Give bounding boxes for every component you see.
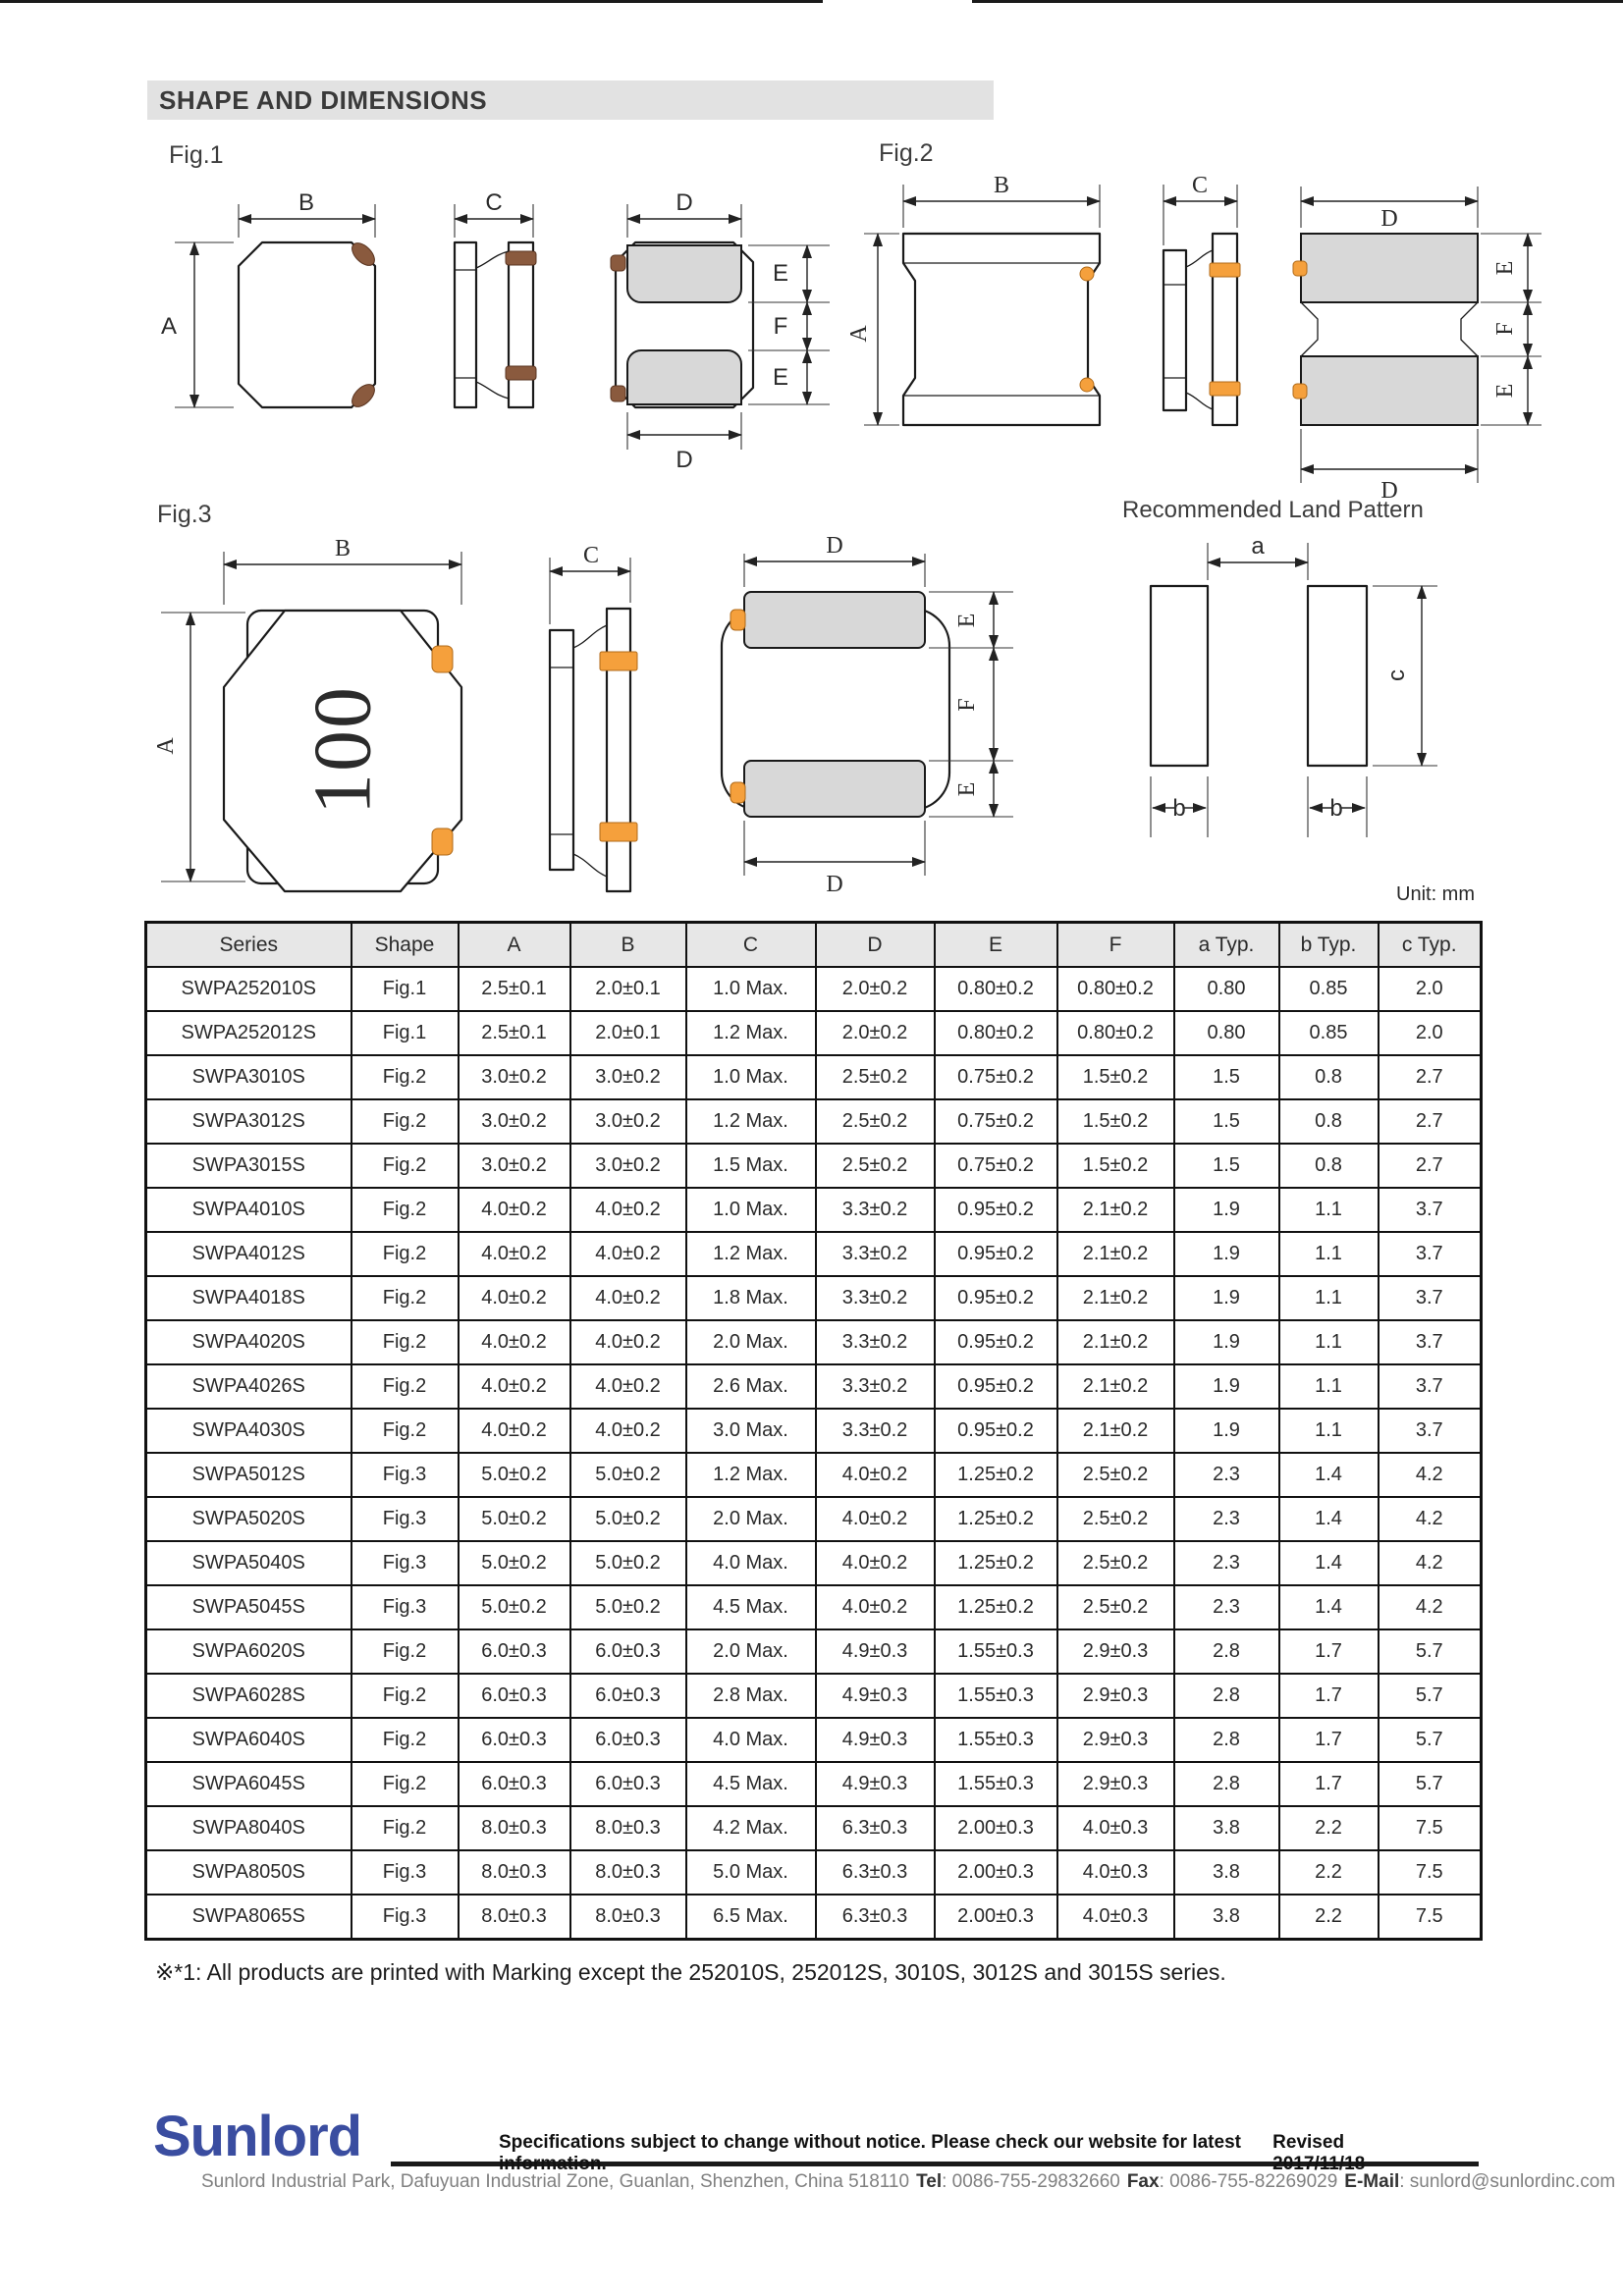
- table-cell: Fig.3: [352, 1453, 459, 1497]
- table-cell: 1.55±0.3: [935, 1674, 1057, 1718]
- table-cell: 1.2 Max.: [686, 1453, 816, 1497]
- table-cell: 7.5: [1379, 1806, 1482, 1850]
- table-row: SWPA8050SFig.38.0±0.38.0±0.35.0 Max.6.3±…: [146, 1850, 1482, 1895]
- dim-label-D: D: [676, 189, 692, 216]
- table-cell: 3.7: [1379, 1276, 1482, 1320]
- table-cell: 6.0±0.3: [570, 1674, 686, 1718]
- inductance-marking: 100: [298, 685, 389, 815]
- table-cell: 3.0±0.2: [570, 1144, 686, 1188]
- table-cell: 1.8 Max.: [686, 1276, 816, 1320]
- table-cell: 3.8: [1174, 1806, 1279, 1850]
- terminal-band: [600, 652, 637, 670]
- table-cell: SWPA5020S: [146, 1497, 352, 1541]
- table-cell: 0.85: [1279, 1011, 1379, 1055]
- table-cell: 4.0±0.2: [459, 1276, 570, 1320]
- table-cell: SWPA5040S: [146, 1541, 352, 1585]
- table-row: SWPA8065SFig.38.0±0.38.0±0.36.5 Max.6.3±…: [146, 1895, 1482, 1940]
- solder-pad: [1301, 356, 1478, 425]
- table-cell: 2.8: [1174, 1674, 1279, 1718]
- table-cell: 2.1±0.2: [1057, 1188, 1174, 1232]
- dim-label-E: E: [773, 260, 788, 287]
- table-cell: Fig.2: [352, 1718, 459, 1762]
- table-cell: 0.80: [1174, 967, 1279, 1011]
- table-cell: 0.8: [1279, 1055, 1379, 1099]
- solder-pad: [1301, 234, 1478, 302]
- table-cell: 0.95±0.2: [935, 1276, 1057, 1320]
- table-cell: 1.9: [1174, 1364, 1279, 1409]
- marking-footnote: ※*1: All products are printed with Marki…: [155, 1959, 1226, 1986]
- table-cell: 4.0±0.2: [816, 1497, 935, 1541]
- table-cell: 2.0±0.1: [570, 1011, 686, 1055]
- table-cell: 5.0±0.2: [570, 1585, 686, 1629]
- table-cell: 1.1: [1279, 1320, 1379, 1364]
- table-cell: 2.00±0.3: [935, 1850, 1057, 1895]
- table-cell: 5.7: [1379, 1674, 1482, 1718]
- fig1-drawing: B A C D D: [147, 177, 844, 481]
- terminal-pad: [432, 646, 453, 672]
- dim-label-A: A: [153, 737, 179, 755]
- table-cell: 2.1±0.2: [1057, 1364, 1174, 1409]
- column-header: B: [570, 923, 686, 968]
- table-row: SWPA5045SFig.35.0±0.25.0±0.24.5 Max.4.0±…: [146, 1585, 1482, 1629]
- fig2-front-view: B A: [846, 173, 1100, 425]
- terminal-band: [1210, 382, 1240, 396]
- terminal-pad: [1080, 378, 1094, 392]
- table-cell: 1.2 Max.: [686, 1232, 816, 1276]
- table-cell: SWPA3010S: [146, 1055, 352, 1099]
- table-cell: 8.0±0.3: [459, 1895, 570, 1940]
- table-cell: 2.1±0.2: [1057, 1232, 1174, 1276]
- table-cell: 4.0±0.2: [570, 1409, 686, 1453]
- table-cell: 0.80±0.2: [1057, 1011, 1174, 1055]
- table-cell: 4.0±0.2: [570, 1320, 686, 1364]
- table-cell: 4.0±0.3: [1057, 1806, 1174, 1850]
- table-cell: SWPA5045S: [146, 1585, 352, 1629]
- fig2-side-view: C: [1163, 173, 1240, 425]
- table-cell: 6.0±0.3: [459, 1762, 570, 1806]
- dim-label-F: F: [774, 313, 788, 340]
- table-cell: 5.0±0.2: [459, 1453, 570, 1497]
- table-cell: 8.0±0.3: [459, 1850, 570, 1895]
- terminal-tab: [1293, 261, 1307, 276]
- table-cell: 2.8 Max.: [686, 1674, 816, 1718]
- table-cell: 4.0±0.2: [459, 1364, 570, 1409]
- table-cell: Fig.2: [352, 1364, 459, 1409]
- table-cell: 1.5±0.2: [1057, 1055, 1174, 1099]
- tel-value: : 0086-755-29832660: [942, 2171, 1120, 2192]
- table-cell: 6.0±0.3: [570, 1762, 686, 1806]
- dim-label-a: a: [1251, 533, 1265, 560]
- solder-pad: [744, 592, 925, 648]
- solder-pad: [744, 761, 925, 817]
- table-cell: 3.3±0.2: [816, 1364, 935, 1409]
- table-cell: 3.7: [1379, 1320, 1482, 1364]
- table-cell: SWPA5012S: [146, 1453, 352, 1497]
- column-header: b Typ.: [1279, 923, 1379, 968]
- table-cell: 2.7: [1379, 1099, 1482, 1144]
- table-cell: 5.0 Max.: [686, 1850, 816, 1895]
- table-row: SWPA252010SFig.12.5±0.12.0±0.11.0 Max.2.…: [146, 967, 1482, 1011]
- table-cell: SWPA8050S: [146, 1850, 352, 1895]
- table-cell: 3.0±0.2: [459, 1055, 570, 1099]
- table-cell: 4.2: [1379, 1585, 1482, 1629]
- table-cell: 2.0±0.2: [816, 967, 935, 1011]
- table-cell: Fig.3: [352, 1895, 459, 1940]
- table-row: SWPA4010SFig.24.0±0.24.0±0.21.0 Max.3.3±…: [146, 1188, 1482, 1232]
- table-cell: SWPA4012S: [146, 1232, 352, 1276]
- dim-label-E: E: [954, 782, 980, 797]
- table-cell: Fig.2: [352, 1320, 459, 1364]
- terminal-tab: [611, 386, 625, 401]
- scan-artifact-line: [972, 0, 1623, 3]
- table-cell: Fig.2: [352, 1188, 459, 1232]
- table-cell: 4.0±0.3: [1057, 1850, 1174, 1895]
- table-cell: 2.7: [1379, 1055, 1482, 1099]
- table-cell: SWPA3015S: [146, 1144, 352, 1188]
- table-cell: 7.5: [1379, 1850, 1482, 1895]
- column-header: D: [816, 923, 935, 968]
- table-cell: 1.5: [1174, 1144, 1279, 1188]
- table-row: SWPA4018SFig.24.0±0.24.0±0.21.8 Max.3.3±…: [146, 1276, 1482, 1320]
- table-cell: 4.0 Max.: [686, 1541, 816, 1585]
- land-pattern-title: Recommended Land Pattern: [1122, 497, 1424, 524]
- table-cell: 7.5: [1379, 1895, 1482, 1940]
- table-cell: 5.7: [1379, 1629, 1482, 1674]
- table-cell: 3.3±0.2: [816, 1409, 935, 1453]
- table-cell: 2.9±0.3: [1057, 1718, 1174, 1762]
- fig2-drawing: B A C D D: [864, 157, 1542, 501]
- table-cell: 1.7: [1279, 1629, 1379, 1674]
- table-cell: 2.5±0.2: [1057, 1541, 1174, 1585]
- dim-label-C: C: [485, 189, 502, 216]
- table-cell: SWPA6028S: [146, 1674, 352, 1718]
- scan-artifact-line: [0, 0, 823, 3]
- dim-label-D: D: [826, 872, 842, 897]
- table-cell: SWPA4020S: [146, 1320, 352, 1364]
- dim-label-E: E: [1492, 261, 1518, 276]
- table-cell: 0.80±0.2: [1057, 967, 1174, 1011]
- dim-label-D: D: [1380, 206, 1397, 232]
- table-cell: 2.1±0.2: [1057, 1276, 1174, 1320]
- terminal-tab: [730, 610, 745, 630]
- table-cell: 2.5±0.1: [459, 967, 570, 1011]
- table-cell: 1.25±0.2: [935, 1453, 1057, 1497]
- table-cell: 4.0±0.3: [1057, 1895, 1174, 1940]
- table-cell: 4.2 Max.: [686, 1806, 816, 1850]
- table-cell: 6.0±0.3: [570, 1718, 686, 1762]
- table-cell: 5.0±0.2: [570, 1453, 686, 1497]
- dim-label-B: B: [994, 173, 1009, 198]
- table-cell: Fig.2: [352, 1276, 459, 1320]
- terminal-tab: [730, 782, 745, 803]
- solder-pad: [627, 350, 741, 404]
- table-cell: 2.5±0.2: [816, 1055, 935, 1099]
- table-cell: 0.75±0.2: [935, 1099, 1057, 1144]
- table-cell: 2.5±0.2: [1057, 1497, 1174, 1541]
- column-header: Shape: [352, 923, 459, 968]
- table-cell: SWPA8065S: [146, 1895, 352, 1940]
- spec-notice: Specifications subject to change without…: [499, 2132, 1272, 2175]
- table-cell: 1.5 Max.: [686, 1144, 816, 1188]
- table-cell: Fig.2: [352, 1055, 459, 1099]
- table-cell: 3.0±0.2: [459, 1099, 570, 1144]
- table-cell: 4.2: [1379, 1497, 1482, 1541]
- dim-label-A: A: [846, 325, 872, 343]
- table-row: SWPA3012SFig.23.0±0.23.0±0.21.2 Max.2.5±…: [146, 1099, 1482, 1144]
- table-cell: SWPA252010S: [146, 967, 352, 1011]
- table-cell: 0.8: [1279, 1099, 1379, 1144]
- dim-label-b: b: [1172, 795, 1185, 822]
- table-cell: Fig.1: [352, 967, 459, 1011]
- dimensions-table: SeriesShapeABCDEFa Typ.b Typ.c Typ. SWPA…: [144, 921, 1483, 1941]
- table-cell: 2.2: [1279, 1850, 1379, 1895]
- table-row: SWPA3015SFig.23.0±0.23.0±0.21.5 Max.2.5±…: [146, 1144, 1482, 1188]
- table-cell: 0.75±0.2: [935, 1144, 1057, 1188]
- footer-notice-row: Specifications subject to change without…: [499, 2132, 1426, 2175]
- table-row: SWPA8040SFig.28.0±0.38.0±0.34.2 Max.6.3±…: [146, 1806, 1482, 1850]
- dim-label-A: A: [161, 313, 177, 340]
- email-label: E-Mail: [1344, 2171, 1399, 2192]
- table-row: SWPA6020SFig.26.0±0.36.0±0.32.0 Max.4.9±…: [146, 1629, 1482, 1674]
- table-cell: Fig.2: [352, 1629, 459, 1674]
- email-value: : sunlord@sunlordinc.com: [1399, 2171, 1615, 2192]
- table-cell: 4.0±0.2: [459, 1188, 570, 1232]
- table-cell: Fig.2: [352, 1232, 459, 1276]
- table-cell: 1.7: [1279, 1718, 1379, 1762]
- table-cell: 2.00±0.3: [935, 1806, 1057, 1850]
- dim-label-C: C: [583, 543, 599, 568]
- column-header: a Typ.: [1174, 923, 1279, 968]
- table-cell: 2.6 Max.: [686, 1364, 816, 1409]
- table-cell: Fig.2: [352, 1762, 459, 1806]
- table-header-row: SeriesShapeABCDEFa Typ.b Typ.c Typ.: [146, 923, 1482, 968]
- table-cell: 0.95±0.2: [935, 1409, 1057, 1453]
- table-cell: 2.3: [1174, 1541, 1279, 1585]
- table-cell: Fig.2: [352, 1099, 459, 1144]
- table-cell: 2.5±0.2: [816, 1099, 935, 1144]
- fig3-side-view: C: [550, 543, 637, 891]
- table-cell: 3.8: [1174, 1895, 1279, 1940]
- table-cell: 3.7: [1379, 1364, 1482, 1409]
- dim-label-B: B: [335, 536, 351, 561]
- table-cell: 2.00±0.3: [935, 1895, 1057, 1940]
- dim-label-D: D: [1380, 478, 1397, 504]
- fig2-bottom-view: D D E F E: [1293, 187, 1542, 504]
- table-cell: 1.9: [1174, 1320, 1279, 1364]
- table-cell: 2.9±0.3: [1057, 1674, 1174, 1718]
- table-cell: 1.2 Max.: [686, 1099, 816, 1144]
- table-cell: 8.0±0.3: [570, 1806, 686, 1850]
- table-cell: 1.1: [1279, 1364, 1379, 1409]
- table-cell: 4.9±0.3: [816, 1718, 935, 1762]
- fig3-drawing: 100 B A C: [137, 530, 1041, 903]
- table-cell: 0.95±0.2: [935, 1364, 1057, 1409]
- terminal-band: [506, 251, 536, 265]
- table-cell: 5.0±0.2: [459, 1541, 570, 1585]
- table-cell: 1.55±0.3: [935, 1718, 1057, 1762]
- dim-label-E: E: [773, 364, 788, 391]
- fig1-bottom-view: D D E F E: [611, 189, 830, 473]
- table-cell: 1.1: [1279, 1276, 1379, 1320]
- table-cell: 0.75±0.2: [935, 1055, 1057, 1099]
- table-cell: 5.0±0.2: [570, 1497, 686, 1541]
- fig3-bottom-view: D D E F E: [722, 533, 1013, 897]
- table-cell: 1.9: [1174, 1188, 1279, 1232]
- column-header: Series: [146, 923, 352, 968]
- fax-label: Fax: [1127, 2171, 1160, 2192]
- terminal-pad: [432, 828, 453, 855]
- table-cell: 6.0±0.3: [570, 1629, 686, 1674]
- table-cell: SWPA4030S: [146, 1409, 352, 1453]
- table-cell: 4.0 Max.: [686, 1718, 816, 1762]
- table-cell: 2.3: [1174, 1497, 1279, 1541]
- terminal-band: [1210, 263, 1240, 277]
- fig3-label: Fig.3: [157, 501, 212, 529]
- table-cell: Fig.3: [352, 1497, 459, 1541]
- table-cell: SWPA252012S: [146, 1011, 352, 1055]
- unit-label: Unit: mm: [1306, 883, 1475, 906]
- table-cell: 5.7: [1379, 1718, 1482, 1762]
- table-cell: SWPA4026S: [146, 1364, 352, 1409]
- table-cell: 6.5 Max.: [686, 1895, 816, 1940]
- footer-address: Sunlord Industrial Park, Dafuyuan Indust…: [201, 2171, 1488, 2193]
- table-cell: SWPA3012S: [146, 1099, 352, 1144]
- table-cell: Fig.2: [352, 1409, 459, 1453]
- table-cell: 2.5±0.2: [1057, 1453, 1174, 1497]
- dim-label-D: D: [826, 533, 842, 559]
- dim-label-E: E: [954, 614, 980, 628]
- table-cell: 1.7: [1279, 1674, 1379, 1718]
- table-cell: 6.3±0.3: [816, 1850, 935, 1895]
- fig1-side-view: C: [455, 189, 536, 407]
- table-cell: 4.0±0.2: [816, 1453, 935, 1497]
- table-cell: Fig.2: [352, 1674, 459, 1718]
- terminal-band: [600, 823, 637, 841]
- table-cell: Fig.3: [352, 1850, 459, 1895]
- table-cell: 3.7: [1379, 1188, 1482, 1232]
- solder-pad: [627, 245, 741, 302]
- table-cell: 1.55±0.3: [935, 1629, 1057, 1674]
- table-cell: 2.0 Max.: [686, 1497, 816, 1541]
- table-cell: 0.95±0.2: [935, 1232, 1057, 1276]
- table-cell: SWPA4010S: [146, 1188, 352, 1232]
- table-cell: 3.7: [1379, 1232, 1482, 1276]
- table-cell: 4.0±0.2: [816, 1541, 935, 1585]
- table-cell: 3.3±0.2: [816, 1232, 935, 1276]
- table-cell: 5.7: [1379, 1762, 1482, 1806]
- fig1-label: Fig.1: [169, 141, 224, 170]
- table-cell: 0.80±0.2: [935, 1011, 1057, 1055]
- table-cell: 1.5: [1174, 1055, 1279, 1099]
- table-cell: 3.3±0.2: [816, 1188, 935, 1232]
- table-row: SWPA4026SFig.24.0±0.24.0±0.22.6 Max.3.3±…: [146, 1364, 1482, 1409]
- table-cell: 2.2: [1279, 1895, 1379, 1940]
- table-cell: 2.9±0.3: [1057, 1629, 1174, 1674]
- table-cell: 2.0: [1379, 967, 1482, 1011]
- terminal-band: [506, 366, 536, 380]
- table-cell: 2.8: [1174, 1762, 1279, 1806]
- table-cell: 8.0±0.3: [570, 1850, 686, 1895]
- land-pad: [1308, 586, 1367, 766]
- table-cell: 1.4: [1279, 1541, 1379, 1585]
- table-cell: 6.0±0.3: [459, 1674, 570, 1718]
- sunlord-logo: Sunlord: [153, 2104, 361, 2169]
- table-cell: SWPA8040S: [146, 1806, 352, 1850]
- table-cell: 1.5±0.2: [1057, 1144, 1174, 1188]
- table-cell: 1.25±0.2: [935, 1497, 1057, 1541]
- table-cell: 4.2: [1379, 1453, 1482, 1497]
- table-cell: 1.4: [1279, 1585, 1379, 1629]
- dim-label-C: C: [1192, 173, 1208, 198]
- table-cell: 4.0±0.2: [816, 1585, 935, 1629]
- table-cell: SWPA6045S: [146, 1762, 352, 1806]
- tel-label: Tel: [916, 2171, 942, 2192]
- table-cell: 1.2 Max.: [686, 1011, 816, 1055]
- table-cell: 2.0 Max.: [686, 1320, 816, 1364]
- table-cell: 2.9±0.3: [1057, 1762, 1174, 1806]
- terminal-tab: [1293, 384, 1307, 399]
- table-cell: 4.5 Max.: [686, 1585, 816, 1629]
- table-cell: Fig.3: [352, 1541, 459, 1585]
- table-cell: 4.0±0.2: [570, 1364, 686, 1409]
- table-cell: 1.9: [1174, 1232, 1279, 1276]
- table-cell: 1.0 Max.: [686, 967, 816, 1011]
- table-cell: 2.3: [1174, 1585, 1279, 1629]
- table-cell: 2.5±0.1: [459, 1011, 570, 1055]
- dim-label-b: b: [1329, 795, 1342, 822]
- table-cell: SWPA6020S: [146, 1629, 352, 1674]
- table-cell: 4.9±0.3: [816, 1674, 935, 1718]
- table-cell: 1.7: [1279, 1762, 1379, 1806]
- table-cell: 4.0±0.2: [570, 1232, 686, 1276]
- table-cell: 3.7: [1379, 1409, 1482, 1453]
- table-cell: 1.9: [1174, 1276, 1279, 1320]
- table-cell: 1.9: [1174, 1409, 1279, 1453]
- table-row: SWPA5040SFig.35.0±0.25.0±0.24.0 Max.4.0±…: [146, 1541, 1482, 1585]
- table-cell: 0.95±0.2: [935, 1320, 1057, 1364]
- dim-label-E: E: [1492, 384, 1518, 399]
- table-cell: Fig.2: [352, 1806, 459, 1850]
- dim-label-F: F: [1492, 322, 1518, 335]
- table-cell: 8.0±0.3: [459, 1806, 570, 1850]
- column-header: E: [935, 923, 1057, 968]
- section-title: SHAPE AND DIMENSIONS: [147, 80, 994, 120]
- table-cell: 6.3±0.3: [816, 1895, 935, 1940]
- land-pattern-drawing: a c b b: [1129, 535, 1542, 869]
- terminal-tab: [611, 255, 625, 271]
- table-cell: 2.1±0.2: [1057, 1409, 1174, 1453]
- table-row: SWPA6045SFig.26.0±0.36.0±0.34.5 Max.4.9±…: [146, 1762, 1482, 1806]
- table-cell: 6.3±0.3: [816, 1806, 935, 1850]
- table-cell: 5.0±0.2: [459, 1585, 570, 1629]
- table-cell: 2.3: [1174, 1453, 1279, 1497]
- table-cell: 1.5: [1174, 1099, 1279, 1144]
- table-cell: 2.8: [1174, 1718, 1279, 1762]
- table-row: SWPA3010SFig.23.0±0.23.0±0.21.0 Max.2.5±…: [146, 1055, 1482, 1099]
- table-cell: 1.1: [1279, 1409, 1379, 1453]
- table-cell: 4.5 Max.: [686, 1762, 816, 1806]
- table-cell: 0.95±0.2: [935, 1188, 1057, 1232]
- table-cell: Fig.1: [352, 1011, 459, 1055]
- table-cell: 4.2: [1379, 1541, 1482, 1585]
- table-cell: 4.9±0.3: [816, 1629, 935, 1674]
- table-cell: 2.0±0.1: [570, 967, 686, 1011]
- column-header: A: [459, 923, 570, 968]
- dim-label-F: F: [954, 698, 980, 711]
- table-cell: 1.25±0.2: [935, 1585, 1057, 1629]
- terminal-pad: [1080, 267, 1094, 281]
- table-cell: 4.9±0.3: [816, 1762, 935, 1806]
